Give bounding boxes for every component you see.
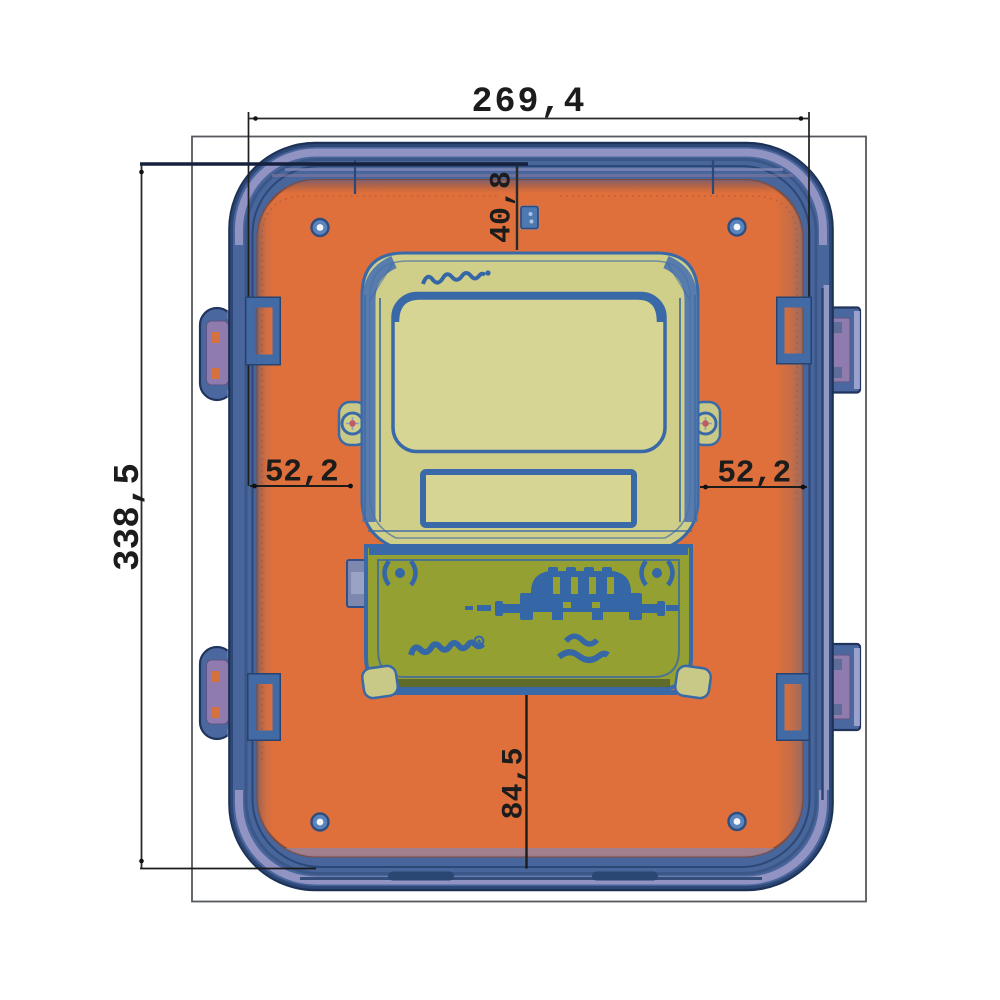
svg-text:52,2: 52,2 bbox=[265, 456, 339, 491]
svg-text:52,2: 52,2 bbox=[717, 457, 791, 492]
svg-text:84,5: 84,5 bbox=[498, 747, 532, 819]
svg-text:269,4: 269,4 bbox=[471, 82, 586, 122]
svg-text:40,8: 40,8 bbox=[486, 171, 520, 243]
svg-text:338,5: 338,5 bbox=[108, 463, 149, 571]
